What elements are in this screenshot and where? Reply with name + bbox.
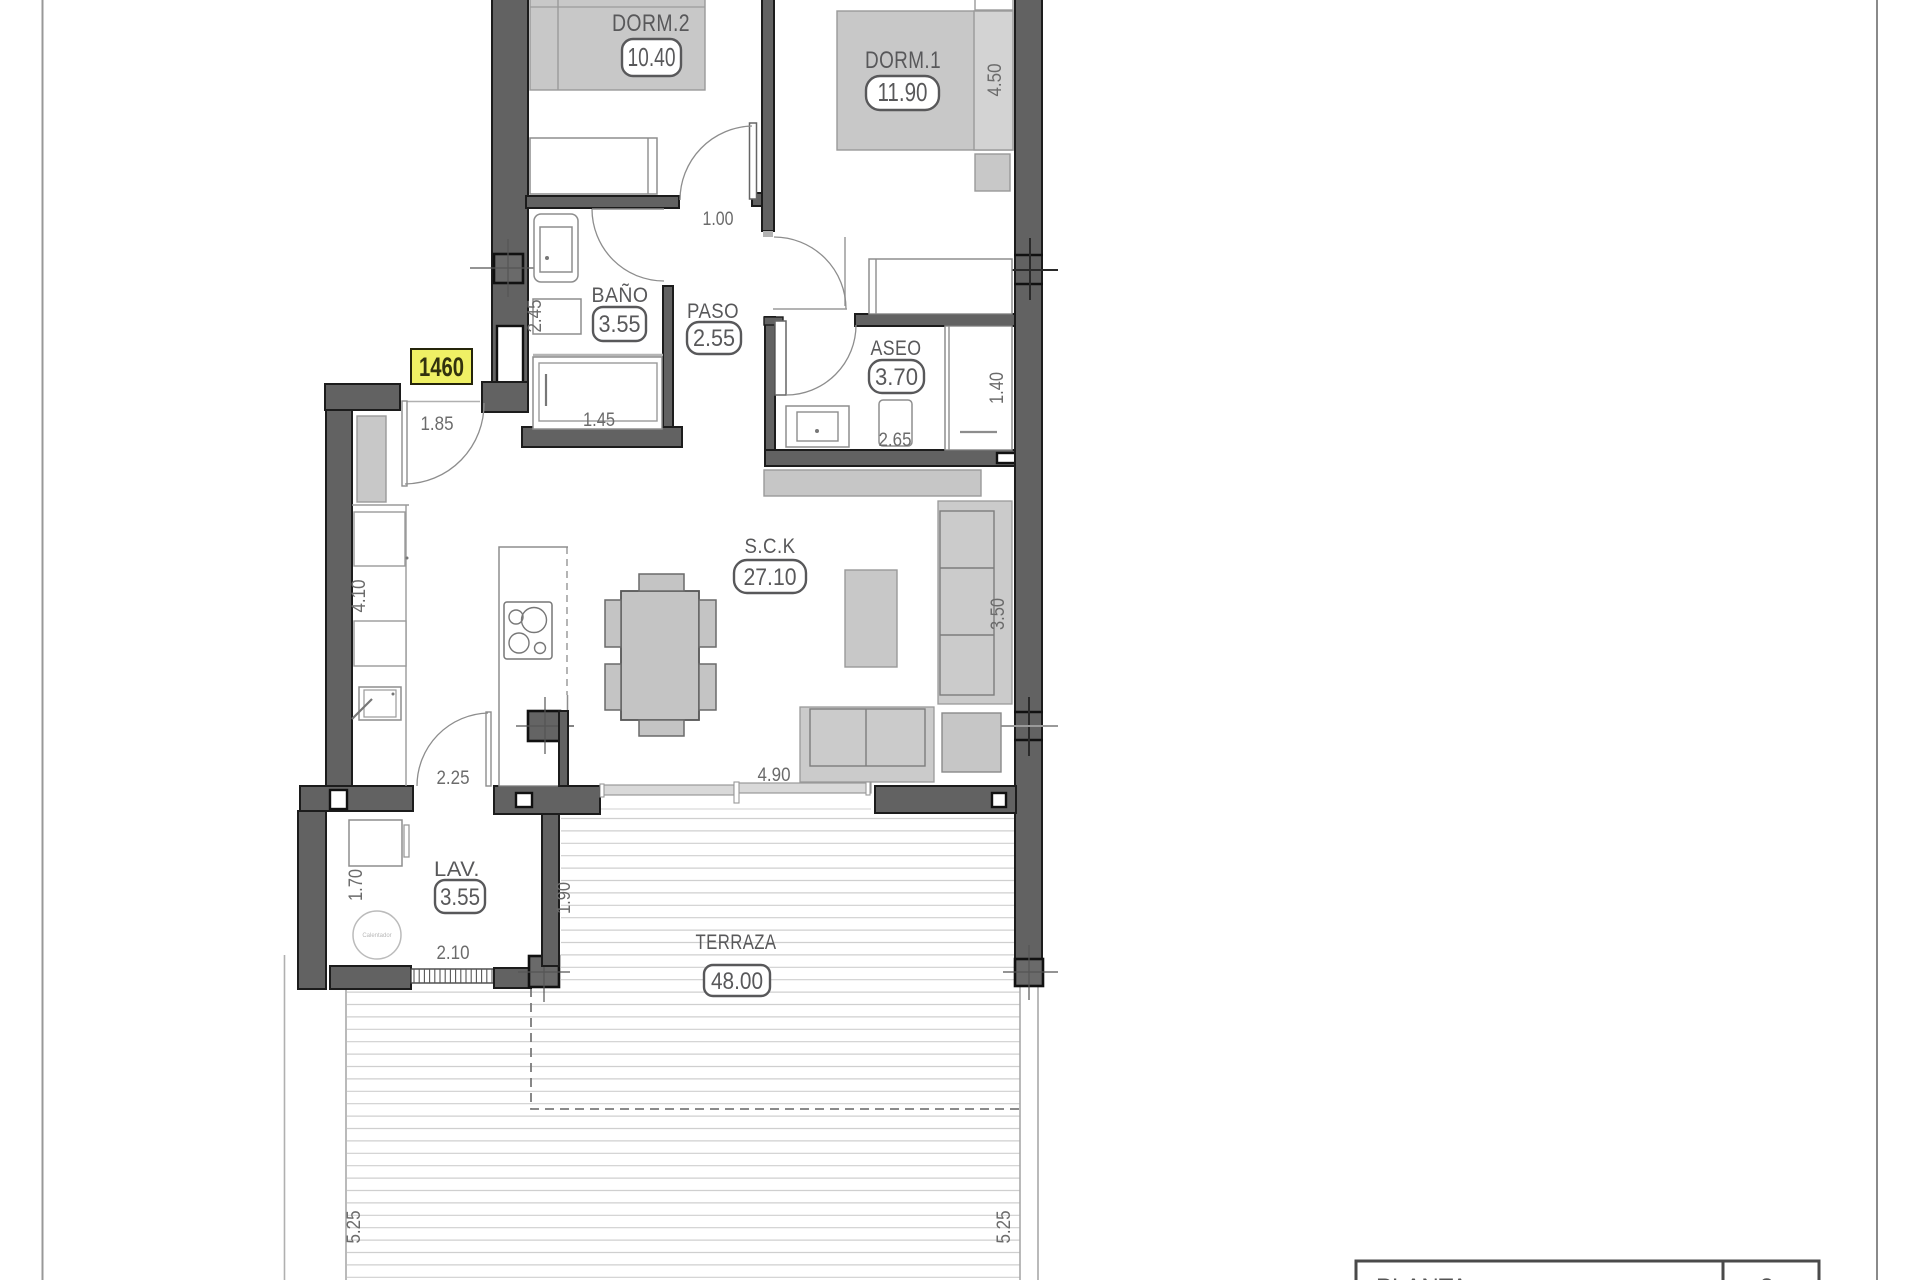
svg-text:1.70: 1.70 bbox=[346, 869, 367, 901]
svg-text:3.70: 3.70 bbox=[875, 364, 918, 391]
svg-text:10.40: 10.40 bbox=[628, 42, 676, 72]
svg-text:5.25: 5.25 bbox=[994, 1211, 1015, 1244]
svg-text:1.00: 1.00 bbox=[703, 209, 734, 230]
svg-text:S.C.K: S.C.K bbox=[745, 535, 796, 558]
svg-text:4.90: 4.90 bbox=[758, 765, 791, 786]
svg-text:3.55: 3.55 bbox=[599, 311, 641, 338]
svg-text:LAV.: LAV. bbox=[434, 858, 480, 881]
svg-text:ASEO: ASEO bbox=[871, 337, 922, 360]
svg-text:TERRAZA: TERRAZA bbox=[696, 931, 777, 954]
svg-text:2.10: 2.10 bbox=[437, 943, 470, 964]
svg-text:2: 2 bbox=[1760, 1274, 1773, 1280]
svg-text:4.50: 4.50 bbox=[985, 64, 1006, 97]
svg-text:BAÑO: BAÑO bbox=[592, 283, 649, 307]
svg-text:5.25: 5.25 bbox=[344, 1211, 365, 1244]
svg-text:27.10: 27.10 bbox=[744, 564, 797, 591]
svg-text:DORM.2: DORM.2 bbox=[612, 10, 690, 37]
svg-text:1.40: 1.40 bbox=[987, 372, 1008, 404]
svg-text:2.65: 2.65 bbox=[879, 430, 912, 451]
svg-text:1.45: 1.45 bbox=[583, 410, 615, 431]
svg-text:2.25: 2.25 bbox=[437, 768, 470, 789]
svg-text:11.90: 11.90 bbox=[878, 77, 928, 107]
svg-text:PASO: PASO bbox=[687, 300, 739, 323]
svg-text:1.85: 1.85 bbox=[421, 414, 454, 435]
svg-text:4.10: 4.10 bbox=[349, 580, 370, 613]
svg-text:2.45: 2.45 bbox=[525, 300, 546, 333]
svg-text:1460: 1460 bbox=[419, 352, 464, 382]
svg-text:1.90: 1.90 bbox=[554, 882, 575, 914]
svg-text:48.00: 48.00 bbox=[711, 968, 763, 995]
svg-text:3.50: 3.50 bbox=[988, 598, 1009, 630]
svg-text:PLANTA: PLANTA bbox=[1376, 1274, 1468, 1280]
svg-text:3.55: 3.55 bbox=[440, 884, 480, 911]
svg-text:Calentador: Calentador bbox=[362, 933, 391, 939]
svg-text:2.55: 2.55 bbox=[693, 325, 735, 352]
svg-text:DORM.1: DORM.1 bbox=[865, 47, 941, 74]
